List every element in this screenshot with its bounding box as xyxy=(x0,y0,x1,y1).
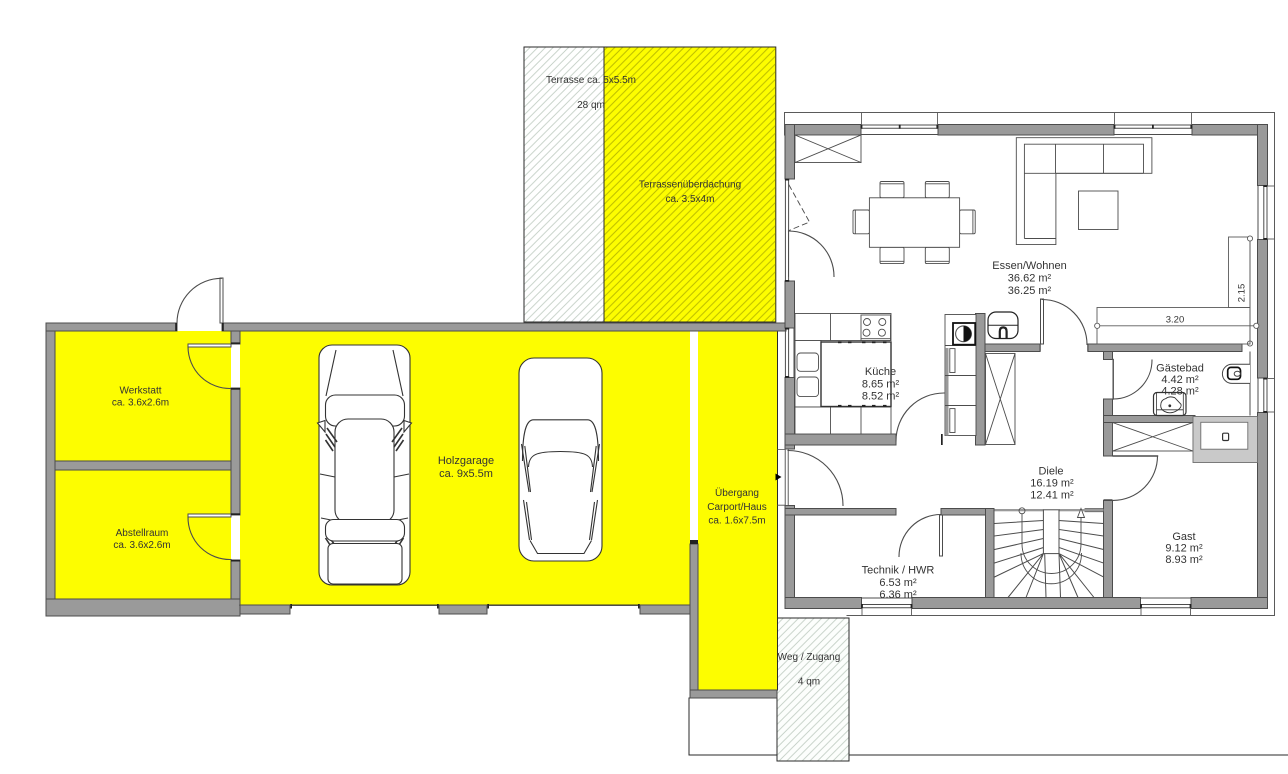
svg-text:Terrassenüberdachung: Terrassenüberdachung xyxy=(639,180,741,191)
svg-text:ca. 9x5.5m: ca. 9x5.5m xyxy=(439,468,493,480)
svg-text:8.93 m²: 8.93 m² xyxy=(1165,554,1203,566)
svg-text:6.53 m²: 6.53 m² xyxy=(879,577,917,589)
svg-text:36.62 m²: 36.62 m² xyxy=(1008,273,1052,285)
svg-text:2.15: 2.15 xyxy=(1237,284,1248,303)
svg-text:ca. 3.6x2.6m: ca. 3.6x2.6m xyxy=(112,398,169,409)
svg-text:8.52 m²: 8.52 m² xyxy=(862,391,900,403)
svg-text:Küche: Küche xyxy=(865,366,896,378)
svg-text:Carport/Haus: Carport/Haus xyxy=(707,502,766,513)
svg-text:36.25 m²: 36.25 m² xyxy=(1008,285,1052,297)
svg-text:Diele: Diele xyxy=(1038,466,1063,478)
svg-text:Holzgarage: Holzgarage xyxy=(438,455,494,467)
svg-text:12.41 m²: 12.41 m² xyxy=(1030,490,1074,502)
svg-text:4.28 m²: 4.28 m² xyxy=(1161,386,1199,398)
svg-text:Essen/Wohnen: Essen/Wohnen xyxy=(992,260,1066,272)
svg-text:3.20: 3.20 xyxy=(1166,315,1185,326)
svg-text:9.12 m²: 9.12 m² xyxy=(1165,543,1203,555)
svg-text:ca. 3.5x4m: ca. 3.5x4m xyxy=(666,194,715,205)
svg-text:6.36 m²: 6.36 m² xyxy=(879,589,917,601)
svg-text:ca. 3.6x2.6m: ca. 3.6x2.6m xyxy=(113,540,170,551)
svg-text:Abstellraum: Abstellraum xyxy=(116,528,169,539)
svg-text:4.42 m²: 4.42 m² xyxy=(1161,374,1199,386)
svg-text:Gästebad: Gästebad xyxy=(1156,363,1204,375)
svg-text:28 qm: 28 qm xyxy=(577,100,605,111)
svg-text:4 qm: 4 qm xyxy=(798,677,820,688)
svg-text:Werkstatt: Werkstatt xyxy=(119,386,161,397)
svg-text:Weg / Zugang: Weg / Zugang xyxy=(778,652,841,663)
svg-text:ca. 1.6x7.5m: ca. 1.6x7.5m xyxy=(708,516,765,527)
svg-text:Gast: Gast xyxy=(1172,531,1195,543)
svg-text:16.19 m²: 16.19 m² xyxy=(1030,478,1074,490)
svg-text:Terrasse ca. 5x5.5m: Terrasse ca. 5x5.5m xyxy=(546,75,636,86)
svg-text:8.65 m²: 8.65 m² xyxy=(862,379,900,391)
svg-text:Übergang: Übergang xyxy=(715,487,759,499)
svg-text:Technik / HWR: Technik / HWR xyxy=(862,565,935,577)
